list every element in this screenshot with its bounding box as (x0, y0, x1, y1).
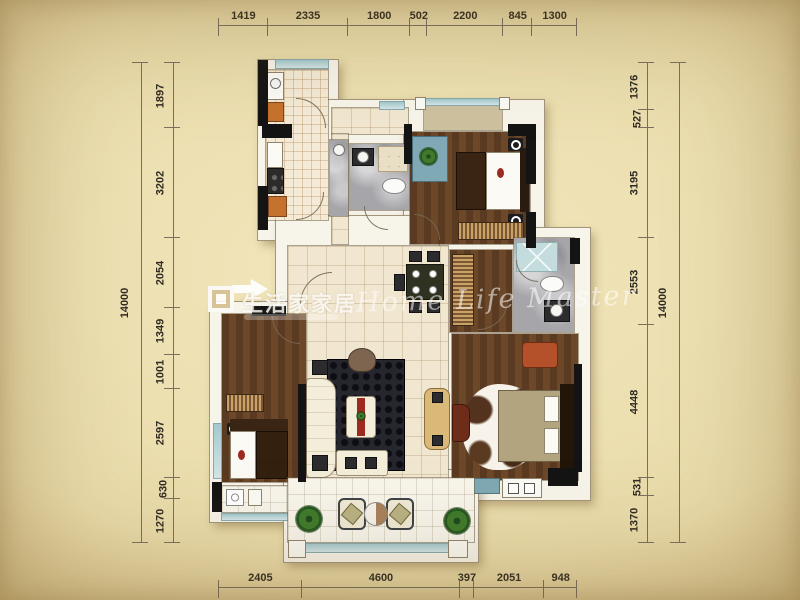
dim-label: 3202 (155, 171, 166, 195)
dim-label: 4448 (629, 389, 640, 413)
bedroom2-plant-icon (420, 148, 437, 165)
balcony-plant-icon (444, 508, 470, 534)
wall-segment (526, 212, 536, 248)
dim-segment: 630 (148, 478, 174, 500)
dim-segment: 2405 (219, 566, 302, 588)
tv-cabinet (336, 450, 388, 476)
dim-label: 845 (509, 11, 527, 26)
dim-segment: 1419 (219, 4, 268, 26)
watermark-logo-icon (208, 286, 234, 312)
dim-label: 1897 (155, 83, 166, 107)
dim-segment: 14000 (660, 63, 680, 543)
armchair-arm-icon (432, 435, 443, 446)
dim-segment: 4448 (622, 325, 648, 478)
dimension-ruler-right-total: 14000 (660, 63, 680, 543)
balcony-post-right (499, 97, 510, 110)
watermark-subtext-blur (244, 314, 338, 320)
bedroom3-window (214, 424, 221, 478)
kitchen-stove-icon (267, 168, 284, 194)
wall-segment (548, 468, 578, 486)
dim-label: 948 (552, 573, 570, 588)
dim-segment: 1270 (148, 499, 174, 543)
wall-segment (404, 124, 412, 164)
coffee-table-plant-icon (357, 412, 365, 420)
bedroom3-wardrobe (226, 394, 264, 412)
dim-segment: 2335 (268, 4, 348, 26)
balcony-post-left (415, 97, 426, 110)
dim-label: 1370 (629, 507, 640, 531)
vestibule-window (380, 102, 404, 109)
balcony-railing (300, 544, 452, 552)
dim-label: 1419 (231, 11, 255, 26)
dim-segment: 531 (622, 478, 648, 496)
wall-segment (262, 124, 292, 138)
dim-segment: 1800 (348, 4, 410, 26)
dining-chair (427, 251, 440, 262)
dim-segment: 397 (460, 566, 474, 588)
dim-label: 1270 (155, 509, 166, 533)
dim-label: 630 (158, 479, 169, 497)
living-armchair (424, 388, 450, 450)
dim-segment: 1300 (532, 4, 577, 26)
dim-label: 2335 (296, 11, 320, 26)
dim-segment: 1897 (148, 63, 174, 128)
dim-label: 2051 (497, 573, 521, 588)
dimension-ruler-top: 14192335180050222008451300 (219, 4, 577, 26)
wall-segment (258, 186, 268, 230)
dim-label: 3195 (629, 171, 640, 195)
bedroom2-duvet (456, 152, 486, 210)
railing-post-right (448, 540, 468, 558)
hall-bathroom-toilet-icon (382, 178, 406, 194)
washer-icon (226, 489, 244, 506)
round-lounge-chair (348, 348, 376, 372)
av-unit-icon (365, 457, 377, 469)
dim-segment: 502 (410, 4, 427, 26)
dim-segment: 2200 (427, 4, 503, 26)
plate-icon (429, 270, 437, 278)
dim-label: 1001 (155, 359, 166, 383)
wall-segment (574, 364, 582, 472)
dim-segment: 527 (622, 110, 648, 128)
lounge-chair (386, 498, 414, 530)
balcony-round-table (364, 502, 388, 526)
bedroom2-balcony (424, 102, 502, 130)
bedroom2-bed-flower (497, 168, 504, 178)
dining-chair (409, 251, 422, 262)
dim-segment: 4600 (302, 566, 460, 588)
bedroom2-bed (486, 152, 522, 210)
island-sink-icon (333, 144, 345, 156)
master-headboard (560, 384, 574, 468)
dim-segment: 948 (544, 566, 577, 588)
drawer-icon (508, 483, 519, 494)
floor-plan-canvas: 14192335180050222008451300 2405460039720… (0, 0, 800, 600)
kitchen-sink-basin-icon (270, 78, 281, 89)
armchair-arm-icon (432, 392, 443, 403)
plate-icon (412, 270, 420, 278)
bedroom3-duvet (256, 431, 288, 479)
watermark-script-text: Home Life Master (356, 280, 637, 318)
dim-label: 502 (410, 11, 428, 26)
dim-label: 2405 (248, 573, 272, 588)
balcony-plant-icon (296, 506, 322, 532)
bedroom2-balcony-window (424, 99, 502, 105)
hall-bathroom-basin-icon (357, 151, 369, 163)
dim-segment: 1349 (148, 308, 174, 354)
dim-label: 1349 (155, 319, 166, 343)
master-pillow (544, 428, 559, 454)
utility-unit (248, 489, 262, 506)
dim-label: 1300 (542, 11, 566, 26)
dim-segment: 1370 (622, 496, 648, 543)
master-drawer-cabinet (502, 478, 542, 498)
dim-label-total-left: 14000 (120, 288, 131, 319)
wall-segment (508, 124, 536, 136)
master-chair-orange (522, 342, 558, 368)
bedroom3-bed-flower (238, 450, 245, 460)
lounge-chair (338, 498, 366, 530)
kitchen-window (276, 60, 328, 68)
dim-label: 2200 (453, 11, 477, 26)
dim-label: 531 (632, 478, 643, 496)
dim-label: 2054 (155, 261, 166, 285)
dimension-ruler-left-total: 14000 (122, 63, 142, 543)
cushion (389, 503, 412, 526)
dim-label-total-right: 14000 (658, 288, 669, 319)
av-unit-icon (345, 457, 357, 469)
dim-segment: 1376 (622, 63, 648, 110)
side-table (312, 455, 328, 471)
tv-wall-segment (298, 384, 306, 482)
railing-post-left (288, 540, 306, 558)
cushion (341, 503, 364, 526)
dim-label: 1376 (629, 74, 640, 98)
master-window-seat (470, 478, 500, 494)
master-armchair (452, 404, 470, 442)
wall-segment (526, 136, 536, 184)
dim-segment: 3195 (622, 128, 648, 238)
kitchen-cabinet-upper (267, 102, 284, 122)
drawer-icon (524, 483, 535, 494)
dim-segment: 845 (503, 4, 532, 26)
dim-label: 4600 (369, 573, 393, 588)
wall-segment (212, 482, 222, 512)
wall-segment (258, 60, 268, 126)
side-table (312, 360, 328, 375)
dim-segment: 1001 (148, 355, 174, 389)
dim-label: 1800 (367, 11, 391, 26)
dimension-ruler-bottom: 240546003972051948 (219, 566, 577, 588)
kitchen-cabinet-lower (268, 196, 287, 217)
kitchen-counter (267, 142, 283, 168)
bedroom2-nightstand-lamp-top (508, 138, 523, 151)
dimension-ruler-left: 1897320220541349100125976301270 (148, 63, 174, 543)
dim-segment: 3202 (148, 128, 174, 238)
wall-segment (570, 238, 580, 264)
dim-segment: 2054 (148, 238, 174, 308)
dim-segment: 14000 (122, 63, 142, 543)
dim-label: 527 (632, 110, 643, 128)
bedroom3-headboard (230, 419, 288, 431)
dim-segment: 2051 (474, 566, 545, 588)
dim-segment: 2597 (148, 389, 174, 478)
dim-label: 2597 (155, 421, 166, 445)
master-pillow (544, 396, 559, 422)
entry-vestibule (332, 108, 408, 134)
